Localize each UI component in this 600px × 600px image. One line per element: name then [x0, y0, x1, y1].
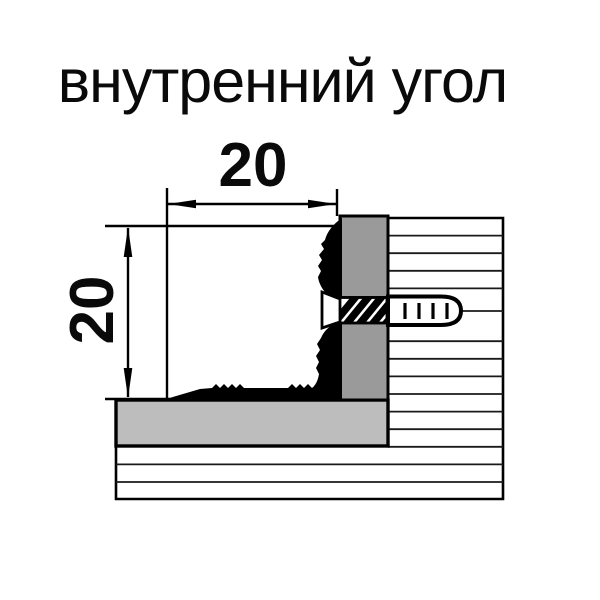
profile-base-slab — [116, 400, 388, 446]
profile-black-leg-upper — [318, 218, 342, 302]
profile-decor-bar-upper — [340, 216, 388, 298]
dowel-anchor — [388, 297, 461, 326]
technical-drawing-canvas: 20 20 — [0, 0, 600, 600]
screw-head — [322, 292, 340, 328]
dimension-height — [105, 226, 340, 399]
profile-black-leg-lower — [163, 319, 342, 401]
height-dim-label: 20 — [58, 276, 127, 345]
dimension-width — [167, 188, 337, 399]
wall-and-floor-section — [116, 218, 503, 499]
page: внутренний угол — [0, 0, 600, 600]
profile-decor-bar-lower — [340, 323, 388, 401]
width-dim-label: 20 — [219, 131, 288, 200]
